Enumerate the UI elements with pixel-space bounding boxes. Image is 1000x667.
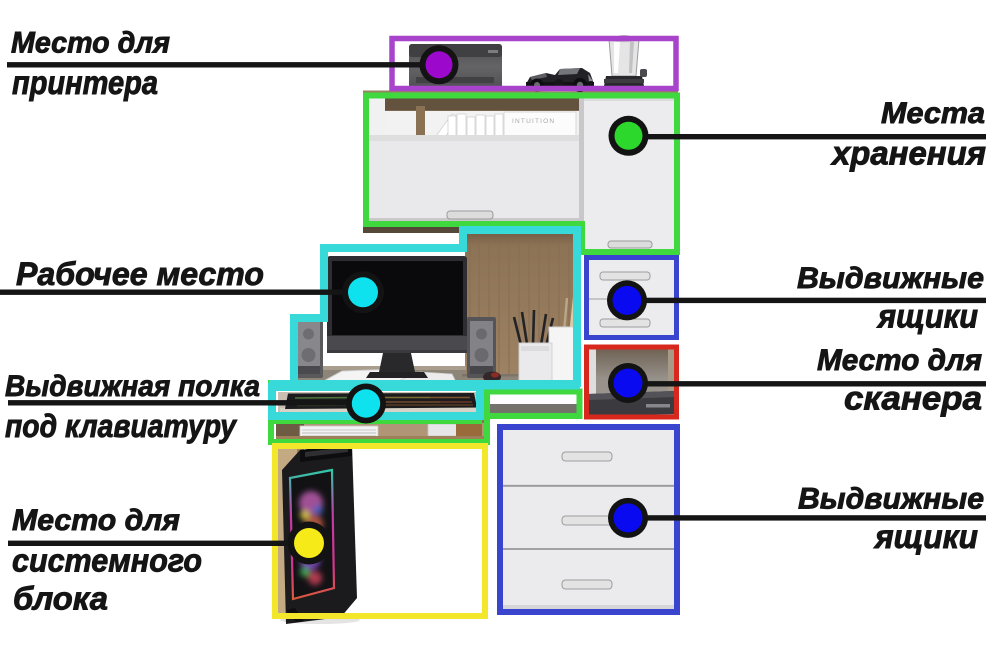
svg-text:Места: Места (881, 97, 985, 130)
svg-text:Рабочее место: Рабочее место (16, 256, 264, 292)
svg-text:Выдвижные: Выдвижные (797, 262, 984, 295)
svg-text:Место для: Место для (12, 504, 180, 537)
svg-text:блока: блока (13, 581, 108, 617)
svg-text:Место для: Место для (11, 27, 170, 60)
svg-text:хранения: хранения (830, 135, 986, 172)
svg-text:принтера: принтера (12, 64, 158, 101)
svg-text:под клавиатуру: под клавиатуру (5, 408, 238, 444)
svg-text:сканера: сканера (844, 380, 982, 417)
svg-text:ящики: ящики (876, 298, 978, 335)
svg-text:Выдвижные: Выдвижные (798, 483, 984, 516)
svg-text:системного: системного (12, 543, 202, 579)
svg-text:INTUITION: INTUITION (512, 118, 555, 125)
svg-text:Место для: Место для (817, 344, 982, 377)
svg-text:ящики: ящики (873, 518, 978, 555)
svg-text:Выдвижная полка: Выдвижная полка (5, 370, 260, 403)
